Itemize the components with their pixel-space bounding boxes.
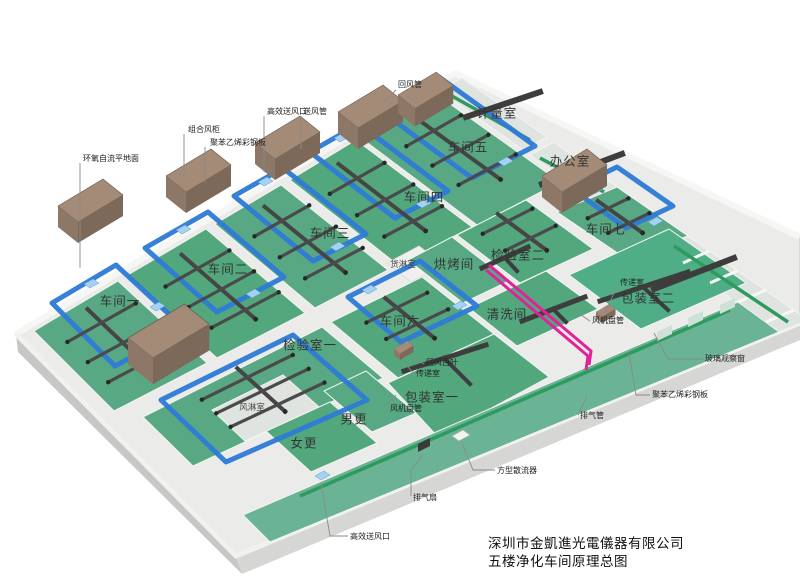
duct-cap — [553, 224, 557, 228]
duct-cap — [425, 291, 429, 295]
duct-cap — [423, 229, 428, 234]
company-name: 深圳市金凱進光電儀器有限公司 — [488, 532, 684, 552]
duct-cap — [459, 113, 463, 117]
callout-return-louver: 回风百叶 — [426, 357, 458, 368]
callout-exhaust-pipe: 排气管 — [580, 410, 604, 421]
duct-cap — [364, 320, 368, 324]
duct-cap — [498, 177, 503, 182]
duct-cap — [530, 207, 534, 211]
duct-cap — [303, 276, 307, 280]
cleanroom-schematic: 车间一 车间二 车间三 车间四 车间五 车间六 车间七 计量室 办公室 检验室一… — [0, 0, 800, 587]
duct-cap — [544, 248, 549, 253]
duct-cap — [322, 380, 326, 384]
callout-pass-box-1: 传递室 — [416, 368, 440, 379]
duct-cap — [276, 290, 280, 294]
room-label-workshop-4: 车间四 — [404, 187, 445, 206]
callout-hepa-1: 高效送风口 — [267, 106, 307, 117]
room-label-inspection-1: 检验室一 — [283, 335, 337, 354]
room-label-men: 男更 — [340, 409, 367, 428]
ahu-ws2 — [166, 149, 231, 213]
duct-cap — [481, 232, 485, 236]
duct-cap — [86, 360, 90, 364]
duct-cap — [430, 163, 434, 167]
duct-cap — [253, 317, 258, 322]
duct-cap — [214, 411, 218, 415]
callout-fcu-1: 风机盘管 — [390, 403, 422, 414]
room-label-workshop-7: 车间七 — [586, 219, 627, 238]
callout-ahu: 组合风柜 — [188, 124, 220, 135]
room-label-office: 办公室 — [550, 151, 591, 170]
duct-cap — [432, 336, 437, 341]
room-label-cleaning: 清洗间 — [487, 304, 528, 323]
duct-cap — [209, 326, 213, 330]
callout-panel-2: 聚苯乙烯彩钢板 — [652, 389, 708, 400]
duct-cap — [106, 380, 110, 384]
room-label-air-shower: 风淋室 — [239, 401, 265, 413]
callout-exhaust-fan: 排气扇 — [413, 492, 437, 503]
duct-cap — [640, 230, 645, 235]
room-label-workshop-5: 车间五 — [448, 137, 489, 156]
room-label-inspection-2: 检验室二 — [491, 245, 545, 264]
duct-cap — [307, 203, 311, 207]
room-label-workshop-2: 车间二 — [208, 259, 249, 278]
room-label-workshop-6: 车间六 — [380, 311, 421, 330]
callout-supply-duct: 送风管 — [303, 106, 327, 117]
duct-cap — [328, 192, 332, 196]
room-label-cargo-shower: 货淋室 — [390, 258, 416, 270]
duct-cap — [384, 337, 388, 341]
callout-epoxy-floor: 环氧自流平地面 — [83, 153, 139, 164]
duct-cap — [278, 255, 282, 259]
room-label-baking: 烘烤间 — [434, 254, 475, 273]
callout-return-duct: 回风管 — [398, 79, 422, 90]
duct-cap — [228, 425, 232, 429]
ahu-ws1 — [58, 179, 123, 243]
duct-cap — [200, 398, 204, 402]
duct-cap — [252, 269, 256, 273]
duct-cap — [65, 340, 69, 344]
duct-cap — [283, 409, 288, 414]
duct-cap — [382, 234, 386, 238]
room-label-metering: 计量室 — [477, 103, 518, 122]
duct-cap — [163, 284, 167, 288]
duct-cap — [382, 161, 386, 165]
duct-cap — [252, 234, 256, 238]
room-label-women: 女更 — [290, 433, 317, 452]
duct-cap — [355, 213, 359, 217]
duct-cap — [514, 152, 518, 156]
callout-panel-1: 聚苯乙烯彩钢板 — [210, 137, 266, 148]
callout-hepa-2: 高效送风口 — [350, 531, 390, 542]
callout-glass-window: 玻璃观察窗 — [705, 353, 745, 364]
duct-cap — [647, 211, 651, 215]
room-label-packing-2: 包装室二 — [621, 288, 675, 307]
room-label-workshop-3: 车间三 — [310, 223, 351, 242]
callout-diffuser: 方型散流器 — [497, 465, 537, 476]
drawing-title: 五楼净化车间原理总图 — [488, 550, 628, 570]
callout-fcu-2: 风机盘管 — [592, 315, 624, 326]
duct-cap — [626, 196, 630, 200]
duct-cap — [446, 307, 450, 311]
duct-cap — [227, 248, 231, 252]
duct-cap — [306, 367, 310, 371]
duct-cap — [343, 270, 348, 275]
duct-cap — [404, 144, 408, 148]
room-label-workshop-1: 车间一 — [100, 291, 141, 310]
callout-pass-box-2: 传递室 — [620, 277, 644, 288]
duct-cap — [456, 183, 460, 187]
duct-cap — [361, 246, 365, 250]
